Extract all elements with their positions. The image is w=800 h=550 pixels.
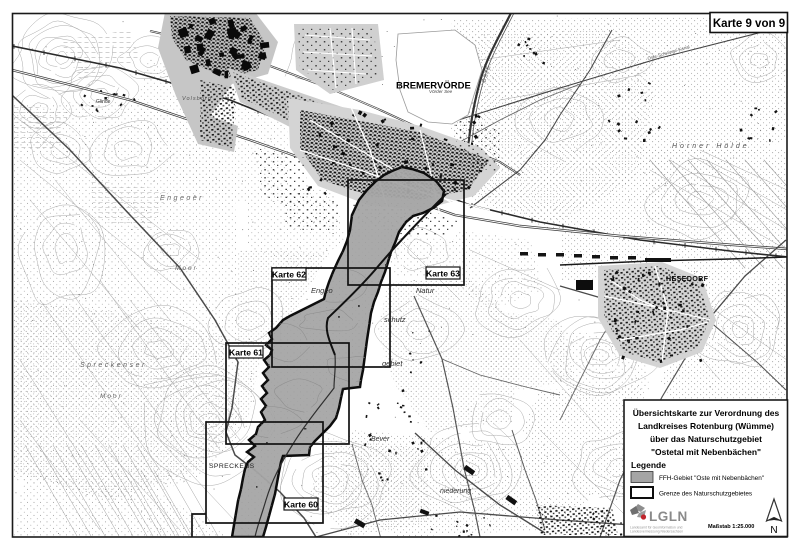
- svg-text:Übersichtskarte zur Verordnung: Übersichtskarte zur Verordnung des: [633, 408, 780, 418]
- svg-text:Spreckenser: Spreckenser: [80, 362, 147, 369]
- svg-text:Glinde: Glinde: [96, 99, 111, 105]
- svg-text:Vörder See: Vörder See: [429, 89, 453, 94]
- svg-text:N: N: [770, 525, 777, 536]
- svg-text:Natur: Natur: [416, 286, 435, 295]
- svg-text:Landesvermessung Niedersachsen: Landesvermessung Niedersachsen: [630, 530, 683, 534]
- svg-text:Moor: Moor: [175, 265, 198, 272]
- svg-text:Engeoer: Engeoer: [160, 195, 204, 202]
- svg-text:über das Naturschutzgebiet: über das Naturschutzgebiet: [650, 434, 762, 444]
- svg-text:HESEDORF: HESEDORF: [666, 274, 709, 283]
- svg-text:Moor: Moor: [100, 393, 123, 400]
- svg-text:SPRECKENS: SPRECKENS: [209, 463, 255, 470]
- svg-text:schutz: schutz: [384, 315, 406, 324]
- svg-text:Karte 63: Karte 63: [426, 269, 460, 279]
- svg-text:FFH-Gebiet "Oste mit Nebenbäch: FFH-Gebiet "Oste mit Nebenbächen": [659, 475, 764, 482]
- svg-text:Karte 61: Karte 61: [229, 348, 263, 358]
- svg-text:Volsborg: Volsborg: [182, 96, 212, 102]
- svg-text:Bever: Bever: [371, 436, 390, 443]
- svg-text:Karte 62: Karte 62: [272, 270, 306, 280]
- svg-text:"Ostetal mit Nebenbächen": "Ostetal mit Nebenbächen": [651, 447, 761, 457]
- svg-text:niederung: niederung: [440, 488, 471, 495]
- svg-text:LGLN: LGLN: [649, 509, 688, 524]
- svg-text:Landkreises Rotenburg (Wümme): Landkreises Rotenburg (Wümme): [638, 421, 774, 431]
- svg-text:Karte 9 von 9: Karte 9 von 9: [713, 18, 785, 30]
- svg-text:Maßstab 1:25.000: Maßstab 1:25.000: [708, 524, 754, 530]
- svg-text:Karte 60: Karte 60: [284, 500, 318, 510]
- svg-text:Legende: Legende: [631, 460, 666, 470]
- svg-text:gebiet: gebiet: [382, 359, 403, 368]
- svg-text:Horner Hölde: Horner Hölde: [672, 143, 750, 150]
- svg-text:Grenze des Naturschutzgebietes: Grenze des Naturschutzgebietes: [659, 491, 752, 498]
- svg-text:Engeo: Engeo: [311, 286, 333, 295]
